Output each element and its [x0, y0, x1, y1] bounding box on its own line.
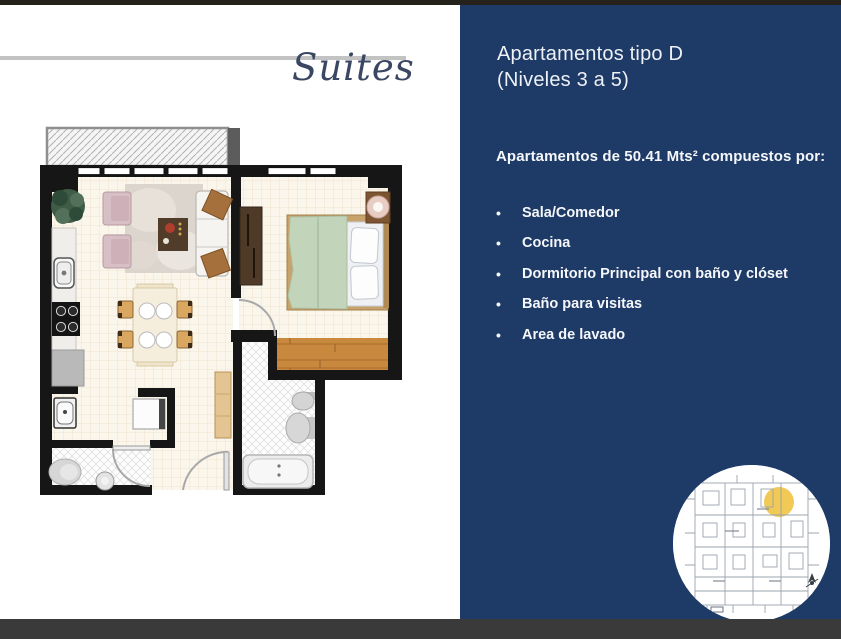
plate	[139, 332, 155, 348]
stove	[52, 302, 80, 336]
pillow	[350, 266, 378, 300]
list-item-label: Baño para visitas	[522, 295, 642, 313]
windows	[78, 168, 336, 175]
laundry-sink	[54, 398, 76, 428]
plant	[51, 189, 85, 224]
apartment-location-marker	[764, 487, 794, 517]
brand-logo: Suites	[292, 48, 412, 89]
title-line-2: (Niveles 3 a 5)	[497, 67, 683, 93]
floorplan-panel: Suites	[0, 5, 460, 619]
plate	[156, 332, 172, 348]
bullet-icon: •	[496, 265, 522, 283]
list-item: • Baño para visitas	[496, 295, 826, 325]
title-line-1: Apartamentos tipo D	[497, 41, 683, 67]
washing-machine	[133, 399, 165, 429]
bathtub	[243, 455, 313, 488]
guest-sink	[96, 472, 114, 490]
coffee-table	[158, 218, 188, 251]
level-plan-inset	[673, 465, 830, 622]
info-panel: Apartamentos tipo D (Niveles 3 a 5) Apar…	[460, 5, 841, 619]
bullet-icon: •	[496, 204, 522, 222]
list-item: • Sala/Comedor	[496, 204, 826, 234]
nightstand	[366, 192, 390, 223]
guest-bath-door-leaf	[113, 446, 150, 450]
level-plan-drawing	[673, 465, 830, 622]
list-item: • Cocina	[496, 234, 826, 264]
plate	[156, 303, 172, 319]
list-item-label: Area de lavado	[522, 326, 625, 344]
dining-table	[133, 288, 177, 362]
bathroom-sink	[292, 392, 315, 410]
list-item: • Area de lavado	[496, 326, 826, 356]
pillow	[350, 227, 379, 263]
apartment-type-title: Apartamentos tipo D (Niveles 3 a 5)	[497, 41, 683, 93]
hall-closet	[215, 372, 231, 438]
armchair	[103, 235, 131, 268]
plate	[139, 303, 155, 319]
wardrobe	[240, 207, 262, 285]
floorplan-drawing	[35, 120, 415, 510]
list-item: • Dormitorio Principal con baño y clóset	[496, 265, 826, 295]
feature-list: • Sala/Comedor • Cocina • Dormitorio Pri…	[496, 204, 826, 356]
bullet-icon: •	[496, 326, 522, 344]
fridge	[52, 350, 84, 386]
bottom-bar	[0, 619, 841, 639]
slide-canvas: Suites	[0, 0, 841, 639]
entry-door-leaf	[224, 452, 229, 490]
bed	[287, 215, 389, 310]
list-item-label: Sala/Comedor	[522, 204, 620, 222]
list-item-label: Dormitorio Principal con baño y clóset	[522, 265, 788, 283]
closet-wood-floor	[277, 338, 389, 372]
kitchen-sink	[54, 258, 74, 288]
armchair	[103, 192, 131, 225]
toilet	[286, 413, 315, 443]
balcony	[47, 128, 240, 166]
bullet-icon: •	[496, 234, 522, 252]
bullet-icon: •	[496, 295, 522, 313]
apartment-size-subtitle: Apartamentos de 50.41 Mts² compuestos po…	[496, 148, 825, 165]
list-item-label: Cocina	[522, 234, 570, 252]
